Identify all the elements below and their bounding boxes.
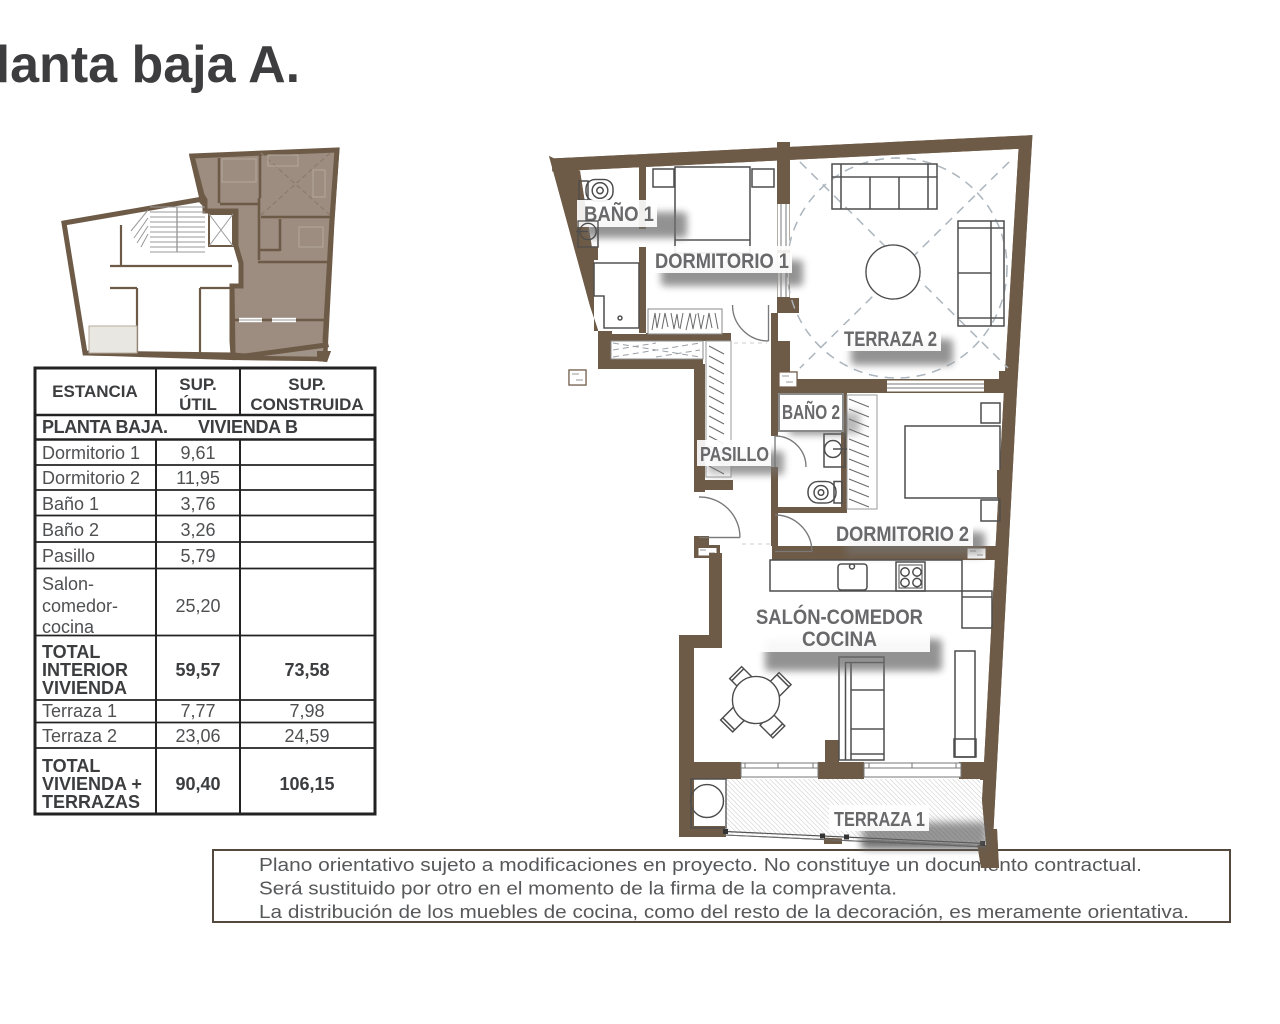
svg-text:Dormitorio 2: Dormitorio 2	[42, 468, 140, 488]
svg-text:23,06: 23,06	[175, 726, 220, 746]
svg-text:3,76: 3,76	[180, 494, 215, 514]
svg-text:CONSTRUIDA: CONSTRUIDA	[250, 395, 363, 414]
svg-text:ESTANCIA: ESTANCIA	[52, 382, 138, 401]
svg-text:TERRAZA 2: TERRAZA 2	[844, 328, 937, 351]
svg-text:TOTAL: TOTAL	[42, 642, 100, 662]
svg-text:7,77: 7,77	[180, 701, 215, 721]
svg-text:59,57: 59,57	[175, 660, 220, 680]
svg-text:PASILLO: PASILLO	[700, 444, 769, 466]
svg-text:90,40: 90,40	[175, 774, 220, 794]
svg-text:VIVIENDA +: VIVIENDA +	[42, 774, 142, 794]
svg-text:INTERIOR: INTERIOR	[42, 660, 128, 680]
svg-text:3,26: 3,26	[180, 520, 215, 540]
svg-text:73,58: 73,58	[284, 660, 329, 680]
svg-text:DORMITORIO 1: DORMITORIO 1	[655, 250, 789, 273]
svg-text:7,98: 7,98	[289, 701, 324, 721]
svg-text:Plano orientativo sujeto a mod: Plano orientativo sujeto a modificacione…	[259, 855, 1142, 875]
svg-text:Terraza 2: Terraza 2	[42, 726, 117, 746]
svg-text:BAÑO 2: BAÑO 2	[782, 401, 840, 424]
svg-text:Será sustituido por otro en el: Será sustituido por otro en el momento d…	[259, 879, 897, 899]
svg-text:TERRAZAS: TERRAZAS	[42, 792, 140, 812]
svg-text:Baño 2: Baño 2	[42, 520, 99, 540]
svg-text:comedor-: comedor-	[42, 596, 118, 616]
svg-text:TERRAZA 1: TERRAZA 1	[834, 809, 925, 831]
svg-text:24,59: 24,59	[284, 726, 329, 746]
svg-text:Terraza 1: Terraza 1	[42, 701, 117, 721]
svg-text:106,15: 106,15	[279, 774, 334, 794]
svg-text:9,61: 9,61	[180, 443, 215, 463]
svg-text:25,20: 25,20	[175, 596, 220, 616]
svg-text:SUP.: SUP.	[288, 375, 326, 394]
svg-text:5,79: 5,79	[180, 546, 215, 566]
svg-text:Dormitorio 1: Dormitorio 1	[42, 443, 140, 463]
svg-text:La distribución de los muebles: La distribución de los muebles de cocina…	[259, 902, 1189, 922]
svg-text:BAÑO 1: BAÑO 1	[584, 203, 654, 226]
svg-text:TOTAL: TOTAL	[42, 756, 100, 776]
svg-text:VIVIENDA B: VIVIENDA B	[198, 417, 298, 437]
svg-text:SUP.: SUP.	[179, 375, 217, 394]
svg-text:ÚTIL: ÚTIL	[179, 395, 217, 414]
svg-text:VIVIENDA: VIVIENDA	[42, 678, 127, 698]
svg-text:11,95: 11,95	[176, 468, 220, 488]
svg-text:cocina: cocina	[42, 617, 95, 637]
svg-text:DORMITORIO 2: DORMITORIO 2	[836, 523, 969, 546]
svg-text:COCINA: COCINA	[802, 628, 877, 651]
svg-text:Pasillo: Pasillo	[42, 546, 95, 566]
svg-text:PLANTA BAJA.: PLANTA BAJA.	[42, 417, 168, 437]
svg-text:Baño 1: Baño 1	[42, 494, 99, 514]
svg-text:Salon-: Salon-	[42, 574, 94, 594]
svg-text:SALÓN-COMEDOR: SALÓN-COMEDOR	[756, 605, 923, 629]
svg-text:Planta baja A.: Planta baja A.	[0, 36, 300, 94]
